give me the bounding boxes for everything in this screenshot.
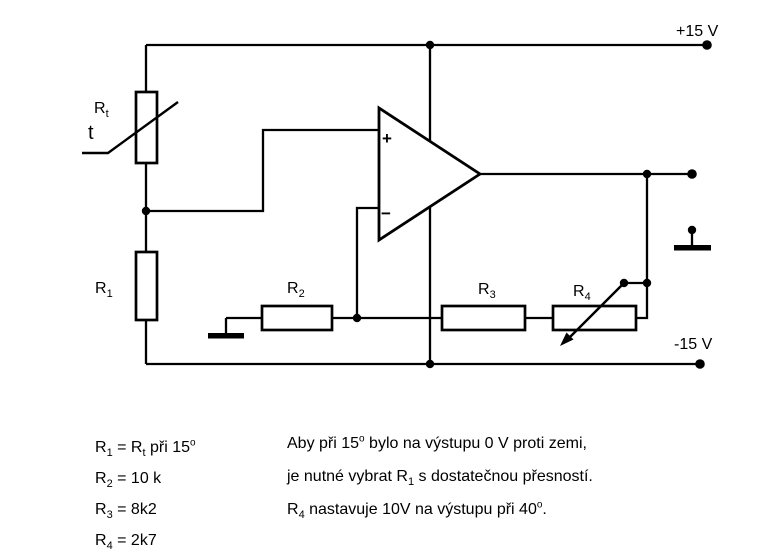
terminal-dot-plus15 <box>702 40 712 50</box>
thermistor-rt-body <box>136 92 157 163</box>
right-ground-bar <box>674 245 711 251</box>
label-r3: R3 <box>478 282 496 298</box>
notes-description: Aby při 15o bylo na výstupu 0 V proti ze… <box>287 427 593 526</box>
circuit-diagram: +15 V -15 V Rt t R1 R2 R3 R4 + − R1 = Rt… <box>0 0 758 556</box>
terminal-dot-ground <box>688 226 696 234</box>
label-r1: R1 <box>95 281 113 297</box>
resistor-r1-body <box>136 252 157 320</box>
junction-dot-top-rail <box>426 41 434 49</box>
note-line-r3: R3 = 8k2 <box>95 494 196 525</box>
junction-dot-inverting <box>353 314 361 322</box>
note-line-r1: R1 = Rt při 15o <box>95 432 196 463</box>
left-ground-bar <box>208 333 244 339</box>
label-t: t <box>88 123 94 143</box>
inverting-input-wire <box>357 208 379 318</box>
junction-dot-wiper <box>620 279 628 287</box>
junction-dot-wiper-tie <box>643 279 651 287</box>
label-r4: R4 <box>573 284 591 300</box>
note-line-r4: R4 = 2k7 <box>95 525 196 556</box>
junction-dot-rt-r1 <box>142 207 150 215</box>
note-line-desc2: je nutné vybrat R1 s dostatečnou přesnos… <box>287 460 593 493</box>
junction-dot-output <box>643 170 651 178</box>
terminal-dot-minus15 <box>695 359 705 369</box>
label-plus15v: +15 V <box>676 24 718 40</box>
terminal-dot-output <box>687 169 697 179</box>
opamp-minus-sign: − <box>381 205 391 222</box>
opamp-plus-sign: + <box>382 130 392 147</box>
label-r2: R2 <box>287 281 305 297</box>
noninverting-input-wire <box>146 130 379 211</box>
note-line-desc3: R4 nastavuje 10V na výstupu při 40o. <box>287 493 593 526</box>
resistor-r2-body <box>262 306 332 330</box>
resistor-r3-body <box>442 306 525 330</box>
label-minus15v: -15 V <box>674 337 712 353</box>
label-rt: Rt <box>94 101 109 117</box>
r4-feedback-wire <box>636 174 647 318</box>
resistor-r4-body <box>553 306 636 330</box>
note-line-r2: R2 = 10 k <box>95 463 196 494</box>
notes-component-values: R1 = Rt při 15o R2 = 10 k R3 = 8k2 R4 = … <box>95 432 196 556</box>
junction-dot-bottom-rail <box>426 360 434 368</box>
note-line-desc1: Aby při 15o bylo na výstupu 0 V proti ze… <box>287 427 593 460</box>
